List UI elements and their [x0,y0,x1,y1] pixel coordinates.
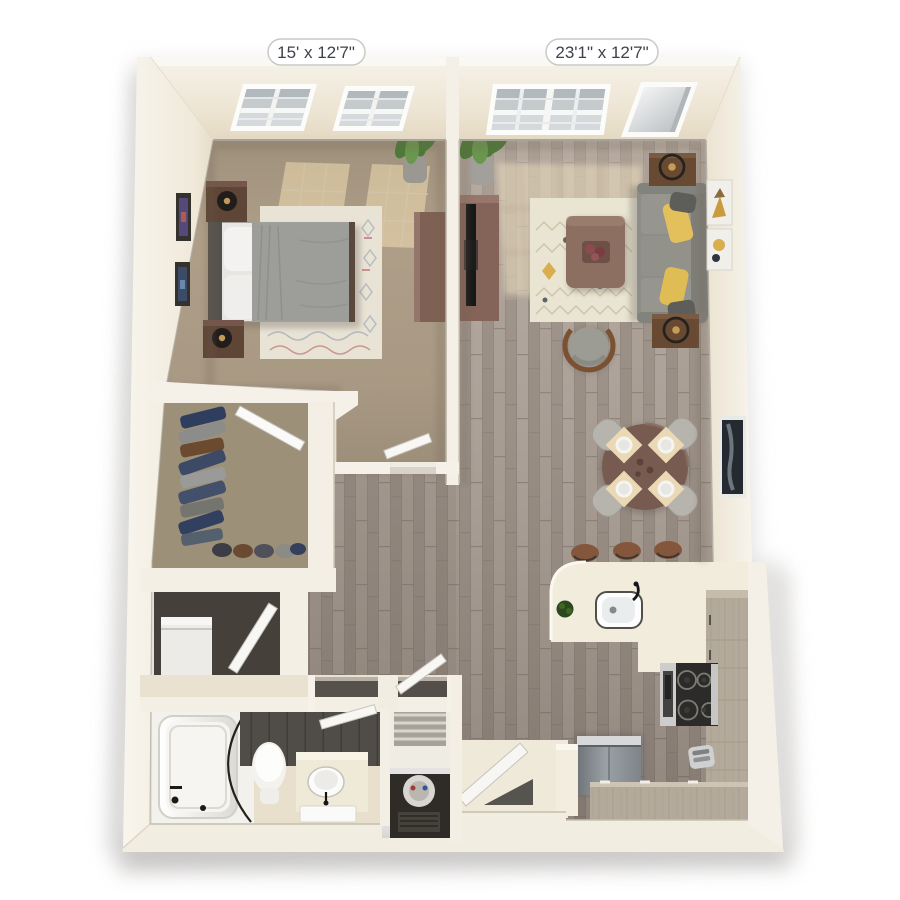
svg-text:15' x 12'7": 15' x 12'7" [277,43,355,62]
svg-text:23'1" x 12'7": 23'1" x 12'7" [555,43,648,62]
